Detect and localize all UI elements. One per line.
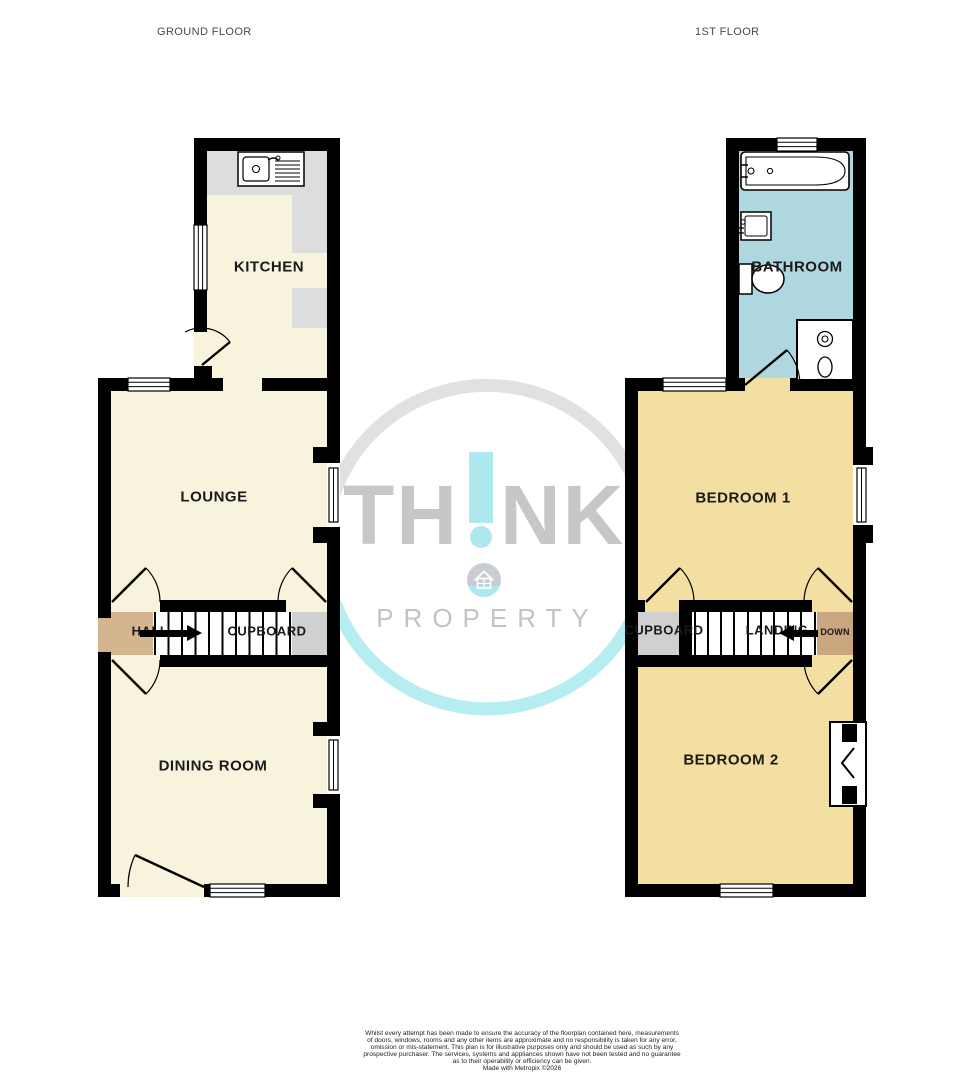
bedroom1-side-window xyxy=(853,465,866,525)
bedroom2-label: BEDROOM 2 xyxy=(683,752,778,769)
ground-floor-plan xyxy=(98,138,340,897)
kitchen-window xyxy=(194,225,207,290)
first-floor-title: 1ST FLOOR xyxy=(695,26,760,38)
lounge-label: LOUNGE xyxy=(180,489,247,506)
chimney-breast xyxy=(830,722,866,806)
kitchen-counter-right-upper xyxy=(292,195,327,253)
basin-icon xyxy=(739,212,771,240)
cupboard-first-label: CUPBOARD xyxy=(624,623,703,638)
down-label: DOWN xyxy=(820,627,849,637)
disclaimer-made-with: Made with Metropix ©2026 xyxy=(222,1066,822,1073)
cupboard-ground-label: CUPBOARD xyxy=(227,624,306,639)
bedroom1-front-window xyxy=(663,378,726,391)
floorplan-page: TH NK PROPERTY xyxy=(0,0,968,1080)
bedroom2-floor xyxy=(638,667,853,884)
disclaimer: Whilst every attempt has been made to en… xyxy=(222,1031,822,1072)
bedroom1-label: BEDROOM 1 xyxy=(695,490,790,507)
lounge-side-window xyxy=(327,463,340,527)
bathroom-window xyxy=(777,138,817,151)
lounge-front-window xyxy=(128,378,170,391)
front-door-opening xyxy=(98,618,111,652)
down-arrow-icon xyxy=(779,625,819,641)
up-arrow-icon xyxy=(140,625,202,641)
kitchen-label: KITCHEN xyxy=(234,259,304,276)
dining-side-window xyxy=(327,736,340,794)
kitchen-counter-right-lower xyxy=(292,288,327,328)
bathroom-label: BATHROOM xyxy=(751,259,842,276)
bath-icon xyxy=(741,152,849,190)
dining-floor xyxy=(111,667,327,884)
sink-icon xyxy=(238,152,304,186)
first-floor-plan xyxy=(625,138,873,897)
dining-rear-window xyxy=(210,884,265,897)
floorplan-drawing xyxy=(0,0,968,1080)
shower-icon xyxy=(797,320,853,380)
ground-floor-title: GROUND FLOOR xyxy=(157,26,252,38)
dining-room-label: DINING ROOM xyxy=(159,758,268,775)
bedroom2-rear-window xyxy=(720,884,773,897)
